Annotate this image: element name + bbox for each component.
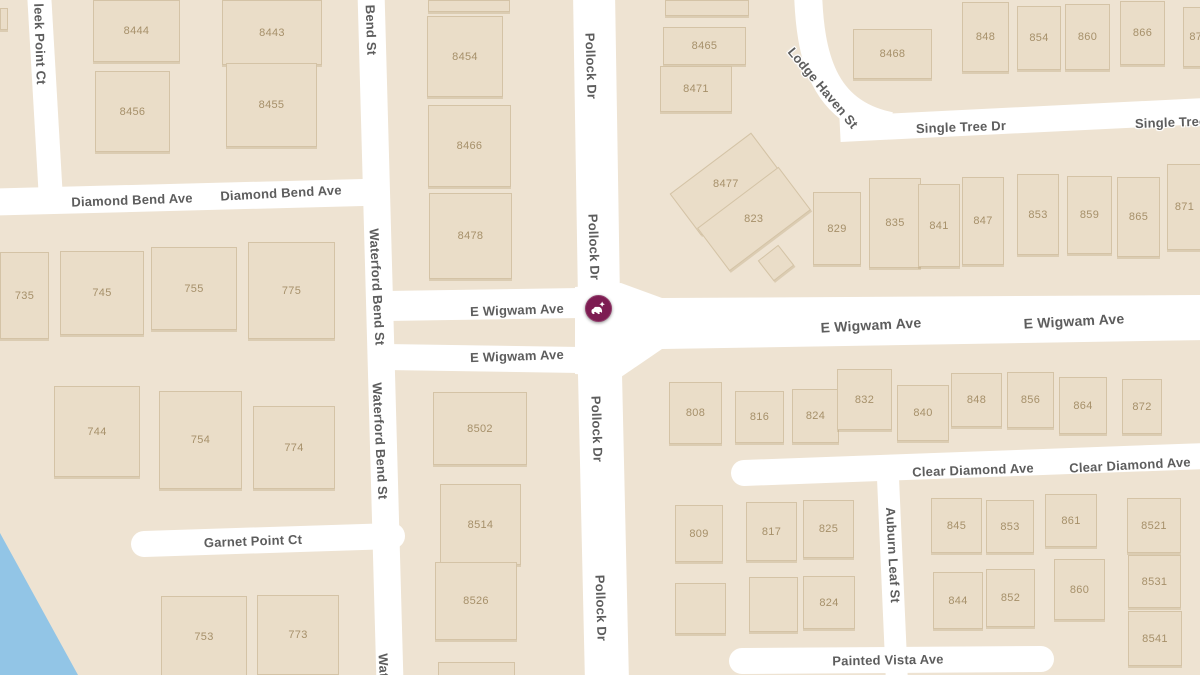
map-canvas[interactable]: 8444844384568455845484668478846584718468…	[0, 0, 1200, 675]
street-label: E Wigwam Ave	[470, 347, 564, 365]
crash-incident-marker[interactable]	[585, 295, 612, 322]
street-label: Single Tree Dr	[1135, 113, 1200, 131]
street-label: Pollock Dr	[592, 575, 609, 642]
crash-car-icon	[589, 299, 608, 318]
street-label: Waterford Bend St	[366, 228, 387, 346]
street-label: Garnet Point Ct	[204, 532, 303, 550]
street-label: Diamond Bend Ave	[220, 182, 342, 203]
street-label: Diamond Bend Ave	[71, 190, 193, 209]
street-label: Waterford Bend St	[375, 653, 396, 675]
street-label: E Wigwam Ave	[1023, 310, 1125, 331]
street-label: Pollock Dr	[582, 33, 599, 100]
street-label: E Wigwam Ave	[820, 314, 922, 335]
street-label: Bend St	[363, 4, 380, 55]
street-label: Painted Vista Ave	[832, 652, 944, 669]
street-label: Single Tree Dr	[916, 118, 1007, 136]
street-label: Auburn Leaf St	[883, 507, 903, 604]
street-label: leek Point Ct	[31, 3, 49, 85]
street-label: Pollock Dr	[588, 396, 605, 463]
street-label: Lodge Haven St	[785, 44, 861, 131]
street-label: Clear Diamond Ave	[1069, 454, 1191, 475]
street-labels-layer: leek Point CtBend StDiamond Bend AveDiam…	[0, 0, 1200, 675]
street-label: Clear Diamond Ave	[912, 460, 1034, 479]
street-label: E Wigwam Ave	[470, 301, 564, 319]
street-label: Pollock Dr	[585, 214, 602, 281]
street-label: Waterford Bend St	[369, 382, 390, 500]
